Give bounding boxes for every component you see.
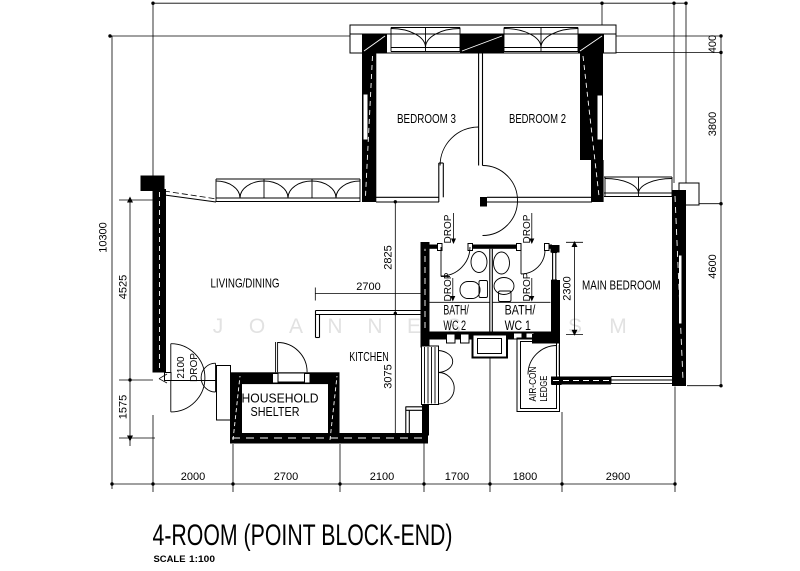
svg-text:LEDGE: LEDGE bbox=[539, 375, 550, 401]
svg-text:AIR-CON: AIR-CON bbox=[528, 367, 539, 402]
svg-text:2700: 2700 bbox=[356, 281, 380, 293]
svg-text:1800: 1800 bbox=[513, 471, 537, 483]
svg-text:BATH/: BATH/ bbox=[443, 303, 469, 318]
svg-text:1700: 1700 bbox=[445, 471, 469, 483]
svg-text:BATH/: BATH/ bbox=[505, 303, 536, 318]
svg-text:2300: 2300 bbox=[562, 276, 574, 300]
svg-text:2900: 2900 bbox=[606, 471, 630, 483]
svg-text:3800: 3800 bbox=[707, 112, 719, 136]
svg-text:4600: 4600 bbox=[707, 254, 719, 278]
svg-text:1:100: 1:100 bbox=[189, 554, 215, 565]
svg-text:2100: 2100 bbox=[370, 471, 394, 483]
svg-text:3075: 3075 bbox=[383, 364, 395, 388]
svg-text:KITCHEN: KITCHEN bbox=[349, 349, 388, 364]
svg-text:10300: 10300 bbox=[98, 222, 110, 253]
svg-text:LIVING/DINING: LIVING/DINING bbox=[211, 276, 280, 291]
svg-text:J: J bbox=[213, 315, 224, 338]
svg-text:BEDROOM 2: BEDROOM 2 bbox=[509, 111, 566, 126]
svg-text:MAIN BEDROOM: MAIN BEDROOM bbox=[582, 278, 661, 293]
svg-text:BEDROOM 3: BEDROOM 3 bbox=[397, 111, 456, 126]
svg-text:E: E bbox=[407, 315, 421, 338]
svg-text:4525: 4525 bbox=[118, 275, 130, 299]
svg-text:A: A bbox=[289, 315, 303, 338]
svg-text:M: M bbox=[609, 315, 627, 338]
svg-text:WC 1: WC 1 bbox=[505, 318, 531, 333]
svg-text:SHELTER: SHELTER bbox=[251, 404, 300, 419]
svg-text:SCALE: SCALE bbox=[154, 554, 186, 565]
svg-text:2100: 2100 bbox=[176, 356, 187, 379]
svg-text:DROP: DROP bbox=[189, 353, 200, 382]
svg-text:WC 2: WC 2 bbox=[443, 318, 466, 333]
svg-text:N: N bbox=[327, 315, 342, 338]
svg-text:O: O bbox=[249, 315, 265, 338]
svg-text:2000: 2000 bbox=[181, 471, 205, 483]
svg-text:N: N bbox=[367, 315, 382, 338]
svg-text:1575: 1575 bbox=[118, 395, 130, 419]
svg-text:400: 400 bbox=[707, 35, 719, 53]
svg-text:2825: 2825 bbox=[383, 245, 395, 269]
svg-text:4-ROOM (POINT BLOCK-END): 4-ROOM (POINT BLOCK-END) bbox=[153, 519, 453, 552]
svg-text:2700: 2700 bbox=[274, 471, 298, 483]
